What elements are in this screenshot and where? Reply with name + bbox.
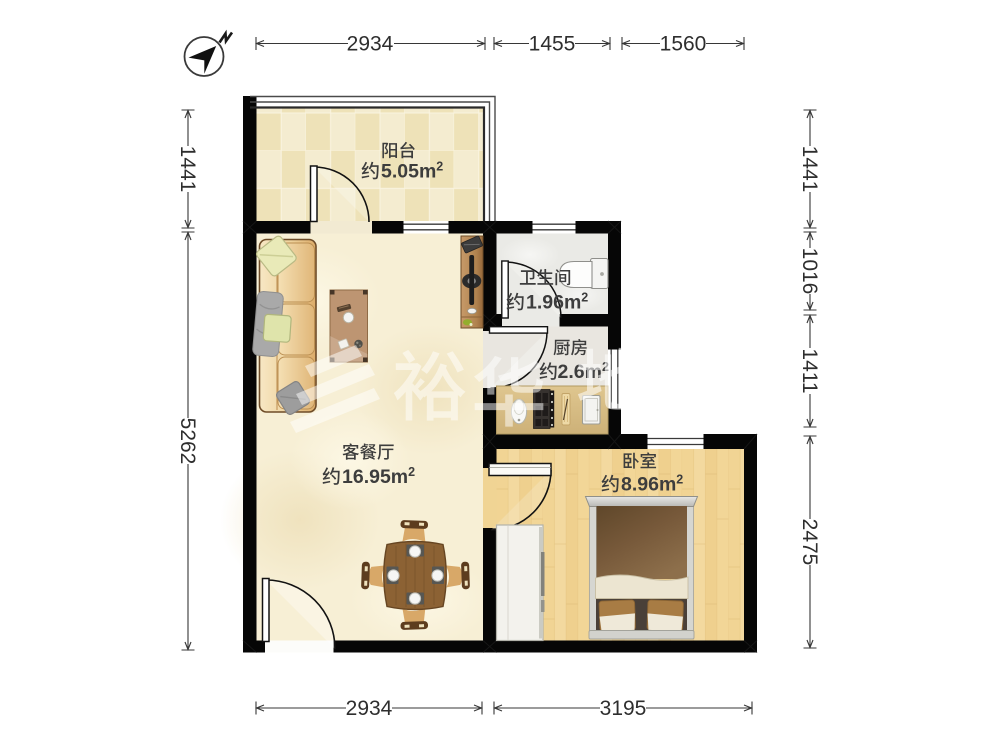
svg-text:8.96m2: 8.96m2 [621, 473, 683, 496]
svg-text:2934: 2934 [346, 697, 393, 720]
svg-text:2934: 2934 [347, 33, 394, 56]
svg-text:1560: 1560 [660, 33, 707, 56]
svg-text:2475: 2475 [798, 519, 821, 566]
svg-text:1441: 1441 [176, 146, 199, 193]
svg-text:3195: 3195 [600, 697, 647, 720]
svg-text:1455: 1455 [529, 33, 576, 56]
svg-text:16.95m2: 16.95m2 [342, 465, 415, 488]
svg-text:1441: 1441 [798, 146, 821, 193]
svg-text:1016: 1016 [798, 248, 821, 295]
svg-text:1411: 1411 [798, 348, 821, 393]
svg-text:1.96m2: 1.96m2 [526, 291, 588, 314]
svg-text:5.05m2: 5.05m2 [381, 160, 443, 183]
svg-text:5262: 5262 [176, 418, 199, 465]
